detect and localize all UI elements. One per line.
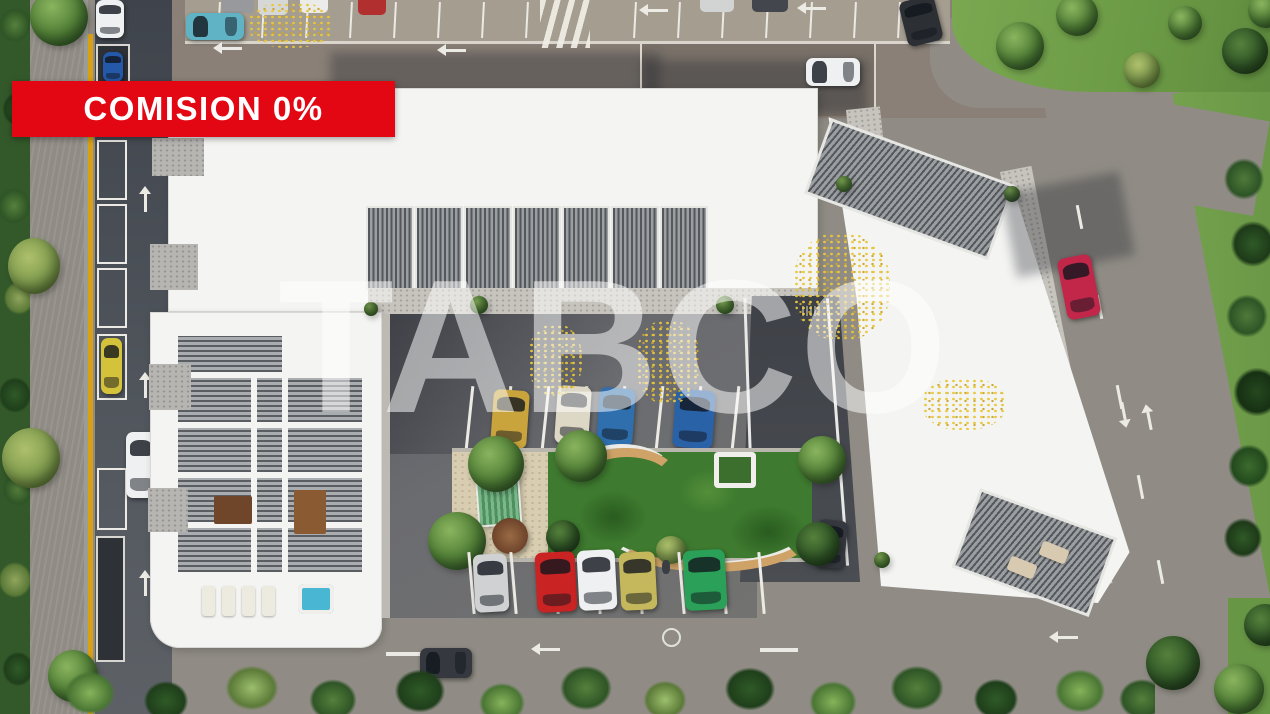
parked-car-partial bbox=[222, 0, 254, 13]
parking-bay bbox=[97, 140, 127, 200]
pergola-cell bbox=[178, 528, 251, 572]
pedestrian bbox=[662, 560, 670, 574]
parked-car-partial bbox=[752, 0, 788, 12]
tree bbox=[1146, 636, 1200, 690]
courtyard-tree bbox=[796, 522, 840, 566]
parked-car-partial bbox=[358, 0, 386, 15]
car-red bbox=[534, 551, 577, 613]
flower-petals bbox=[248, 2, 334, 48]
car-white-lot bbox=[576, 549, 617, 611]
entry-pad bbox=[149, 364, 191, 410]
garage-ramp-left bbox=[98, 538, 123, 660]
planter bbox=[714, 452, 756, 488]
car-silver bbox=[473, 553, 510, 613]
car-white-top-left bbox=[96, 0, 124, 38]
road-arrow-up bbox=[144, 380, 147, 398]
pergola-cell bbox=[257, 478, 282, 522]
car-blue-garage bbox=[103, 52, 123, 82]
road-arrow-left bbox=[806, 7, 826, 10]
aerial-render-scene: TABCO COMISION 0% bbox=[0, 0, 1270, 714]
pergola-cell bbox=[288, 528, 362, 572]
car-green bbox=[682, 549, 727, 611]
parking-bay bbox=[97, 204, 127, 264]
tree bbox=[8, 238, 60, 294]
parking-bay bbox=[97, 468, 127, 530]
lounge-chair bbox=[262, 586, 275, 616]
tree bbox=[1168, 6, 1202, 40]
wood-furniture bbox=[214, 496, 252, 524]
promo-banner: COMISION 0% bbox=[12, 81, 395, 137]
car-olive bbox=[619, 551, 658, 611]
pergola-partial bbox=[178, 336, 282, 372]
bottom-hedge bbox=[55, 645, 1155, 714]
tree bbox=[1124, 52, 1160, 88]
road-arrow-left bbox=[446, 49, 466, 52]
lounge-chair bbox=[202, 586, 215, 616]
tree bbox=[1222, 28, 1268, 74]
jacuzzi bbox=[298, 584, 334, 614]
tree bbox=[996, 22, 1044, 70]
road-arrow-up bbox=[144, 578, 147, 596]
road-arrow-left bbox=[648, 9, 668, 12]
entry-pad bbox=[150, 244, 198, 290]
courtyard-tree bbox=[546, 520, 580, 554]
courtyard-plant bbox=[656, 536, 686, 564]
crosswalk bbox=[540, 0, 590, 48]
roof-bush bbox=[836, 176, 852, 192]
parked-car-partial bbox=[700, 0, 734, 12]
entry-pad bbox=[148, 488, 188, 532]
parking-bay bbox=[97, 268, 127, 328]
roof-bush bbox=[874, 552, 890, 568]
road-arrow-left bbox=[222, 47, 242, 50]
car-white-driveway bbox=[806, 58, 860, 86]
car-yellow-parked bbox=[101, 338, 122, 394]
wood-furniture bbox=[294, 490, 326, 534]
pergola-cell bbox=[178, 428, 251, 472]
pergola-cell bbox=[257, 528, 282, 572]
entry-pad bbox=[152, 138, 204, 176]
road-arrow-left bbox=[1058, 636, 1078, 639]
watermark-text: TABCO bbox=[278, 252, 949, 442]
tree bbox=[2, 428, 60, 488]
umbrella bbox=[492, 518, 528, 554]
lounge-chair bbox=[222, 586, 235, 616]
promo-banner-label: COMISION 0% bbox=[83, 90, 323, 128]
lounge-chair bbox=[242, 586, 255, 616]
road-arrow-up bbox=[144, 194, 147, 212]
right-edge-trees bbox=[1198, 150, 1270, 590]
tree bbox=[1214, 664, 1264, 714]
car-teal-parked bbox=[186, 13, 244, 40]
